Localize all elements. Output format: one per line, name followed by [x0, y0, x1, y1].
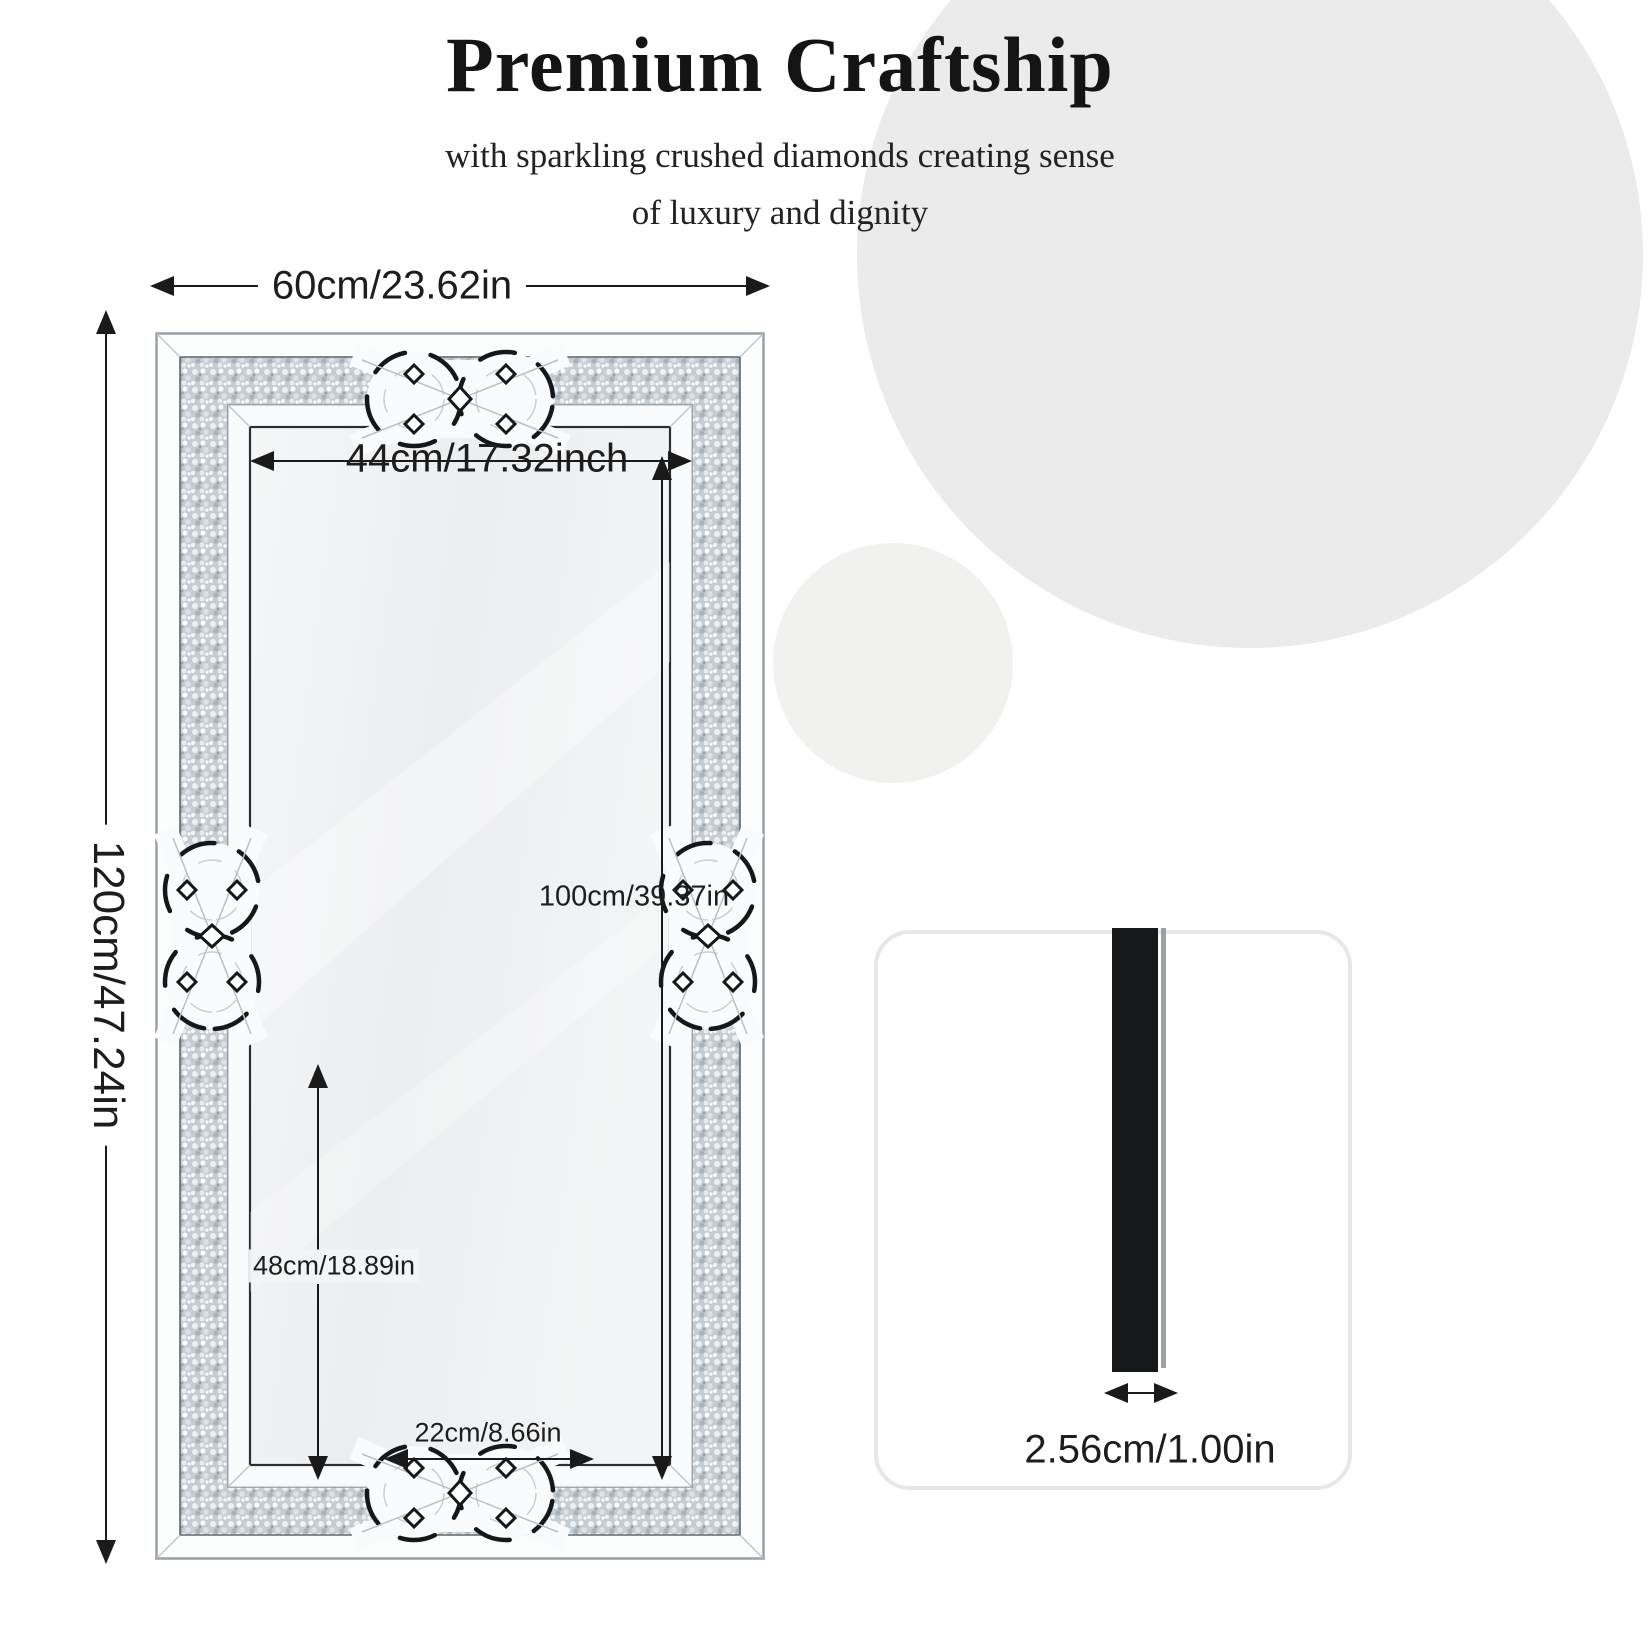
- dim-label-bottom-inner-width: 22cm/8.66in: [414, 1418, 561, 1449]
- subtitle-line-2: of luxury and dignity: [0, 185, 1560, 242]
- side-profile-bar: [1112, 928, 1158, 1372]
- subtitle-line-1: with sparkling crushed diamonds creating…: [0, 128, 1560, 185]
- dim-label-lower-section-height: 48cm/18.89in: [249, 1250, 419, 1283]
- page-title: Premium Craftship: [0, 20, 1560, 110]
- background-circle-small: [773, 543, 1013, 783]
- dim-label-outer-height: 120cm/47.24in: [81, 825, 135, 1146]
- page-subtitle: with sparkling crushed diamonds creating…: [0, 128, 1560, 241]
- dim-label-outer-width: 60cm/23.62in: [258, 262, 526, 311]
- knot-ornament-bottom: [354, 1446, 566, 1540]
- product-infographic: Premium Craftship with sparkling crushed…: [0, 0, 1650, 1650]
- side-profile-edge-stripe: [1161, 928, 1166, 1368]
- mirror-frame: [155, 332, 765, 1560]
- knot-ornament-top: [354, 352, 566, 446]
- knot-ornament-left: [165, 830, 259, 1042]
- dim-label-inner-width: 44cm/17.32inch: [346, 437, 628, 482]
- dim-label-thickness: 2.56cm/1.00in: [1024, 1428, 1275, 1473]
- knot-ornament-right: [661, 830, 755, 1042]
- dim-label-inner-height: 100cm/39.37in: [539, 881, 729, 914]
- header: Premium Craftship with sparkling crushed…: [0, 20, 1560, 241]
- mirror-front-view: [155, 332, 765, 1560]
